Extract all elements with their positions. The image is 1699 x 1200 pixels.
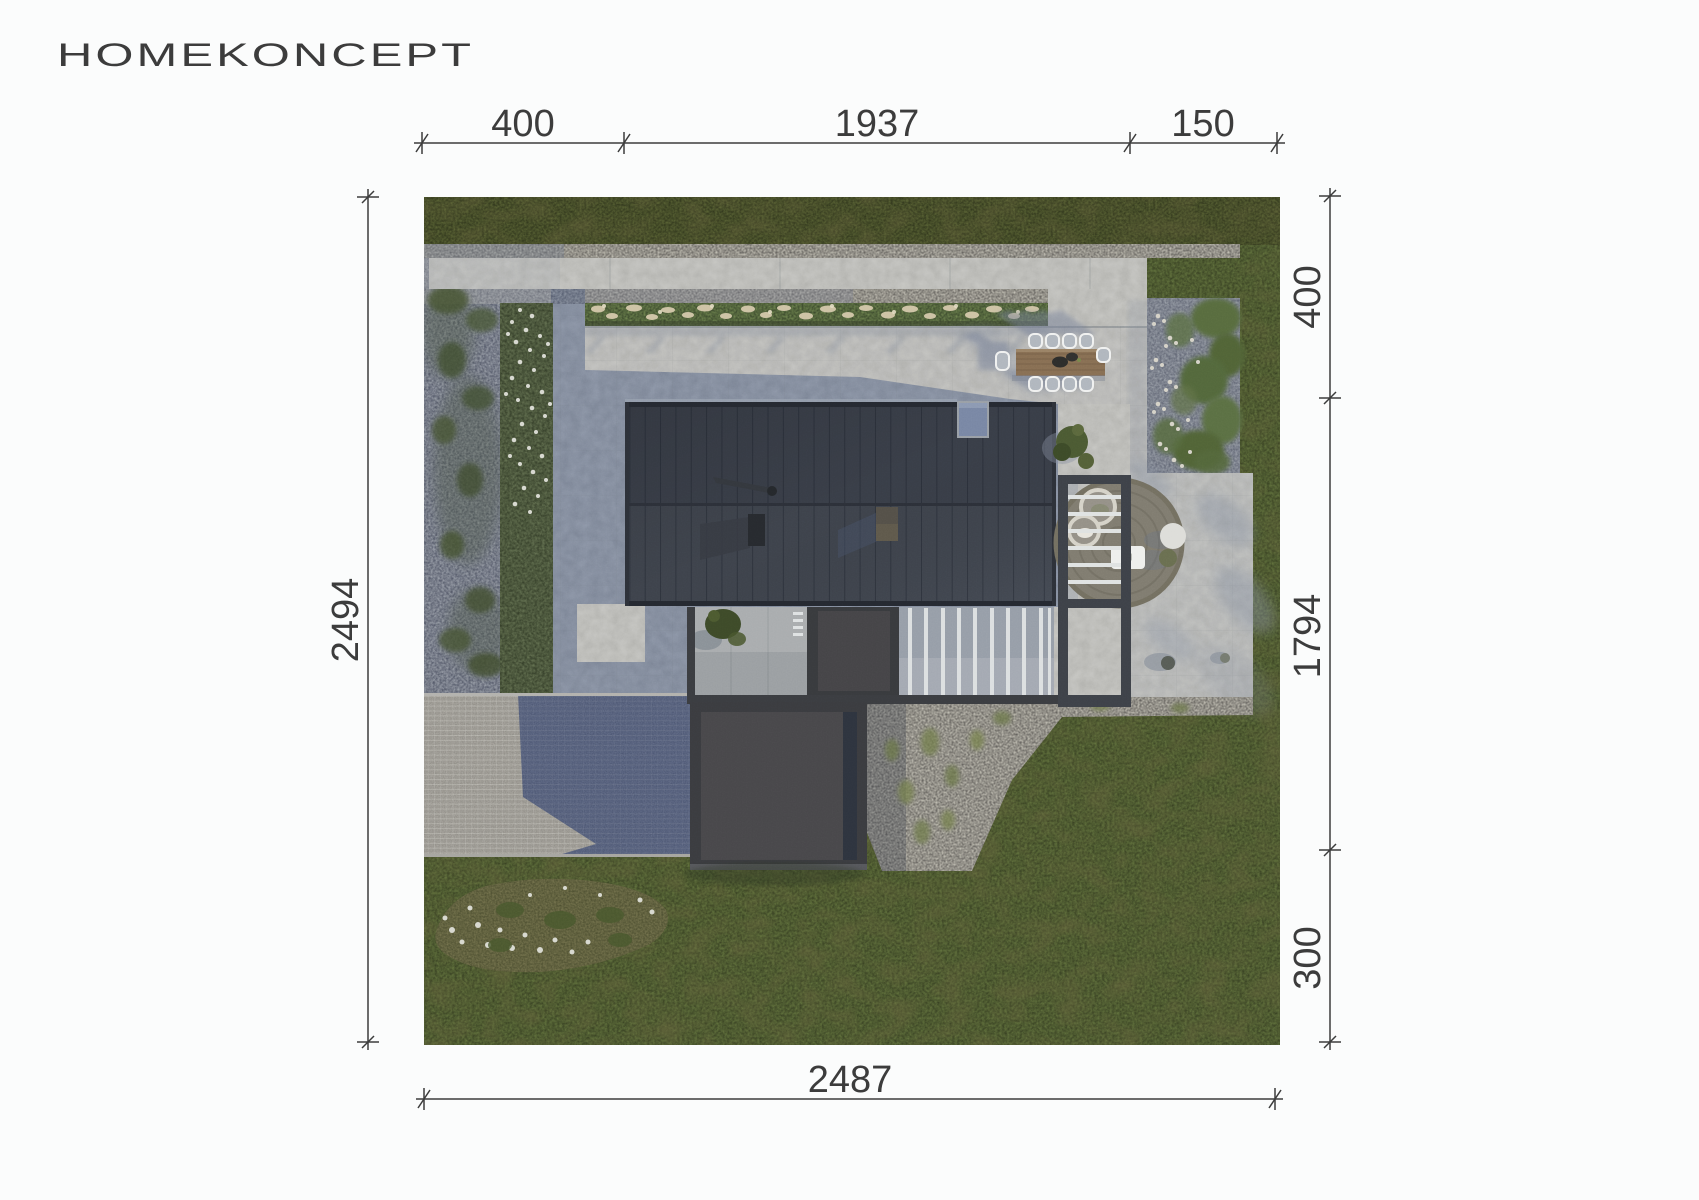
svg-text:1937: 1937 [835,103,920,145]
svg-text:2494: 2494 [325,578,367,663]
svg-text:2487: 2487 [808,1059,893,1101]
svg-text:1794: 1794 [1287,594,1329,679]
svg-text:HOMEKONCEPT: HOMEKONCEPT [57,37,474,73]
svg-text:150: 150 [1171,103,1234,145]
svg-text:400: 400 [1287,265,1329,328]
svg-text:400: 400 [491,103,554,145]
svg-text:300: 300 [1287,926,1329,989]
